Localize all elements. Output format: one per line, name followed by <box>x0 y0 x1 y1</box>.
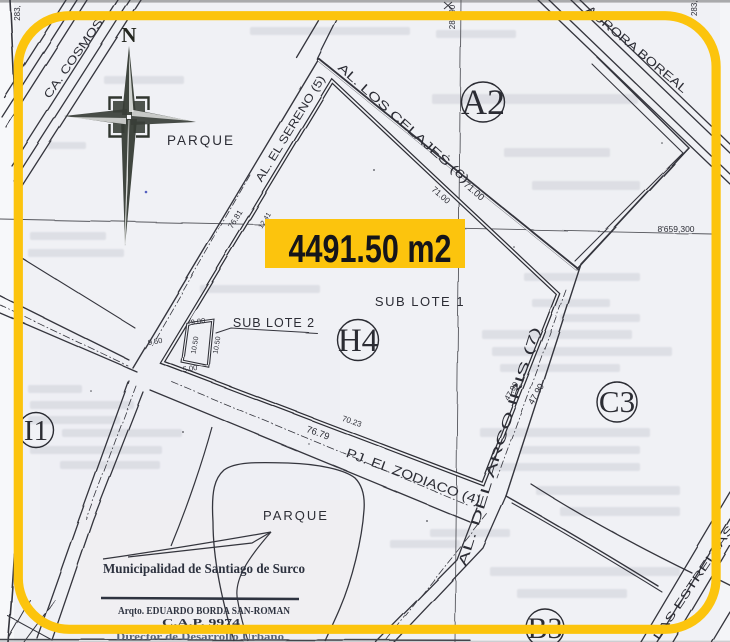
svg-text:SUB LOTE 2: SUB LOTE 2 <box>233 316 315 330</box>
svg-text:Municipalidad de Santiago de S: Municipalidad de Santiago de Surco <box>103 561 305 576</box>
svg-text:H4: H4 <box>338 323 378 359</box>
svg-text:PARQUE: PARQUE <box>167 133 235 148</box>
svg-text:PARQUE: PARQUE <box>263 508 329 523</box>
svg-text:SUB LOTE 1: SUB LOTE 1 <box>375 294 465 309</box>
svg-text:C3: C3 <box>599 384 635 419</box>
svg-text:Arqto. EDUARDO BORDA SAN-ROMAN: Arqto. EDUARDO BORDA SAN-ROMAN <box>118 606 291 617</box>
svg-text:283,: 283, <box>13 5 22 21</box>
svg-text:N: N <box>121 23 136 47</box>
svg-text:I1: I1 <box>24 415 48 447</box>
svg-text:283,9: 283,9 <box>690 0 699 16</box>
svg-text:4491.50 m2: 4491.50 m2 <box>289 228 452 271</box>
svg-text:8'659,300: 8'659,300 <box>657 224 694 234</box>
svg-text:A2: A2 <box>461 82 505 122</box>
